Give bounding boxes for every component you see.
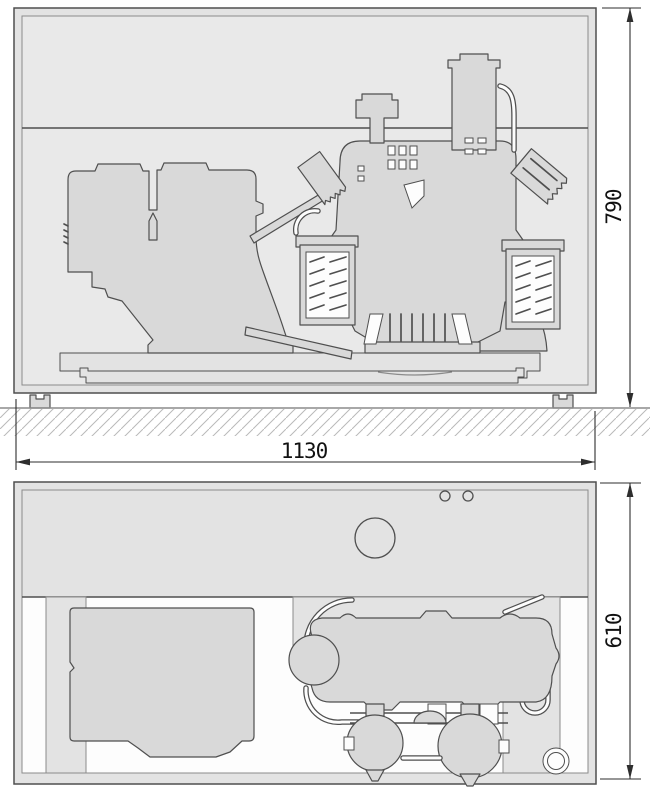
compressor-body-plan	[304, 611, 559, 710]
arrow-down	[627, 765, 634, 779]
plan-view	[14, 482, 596, 786]
right-cooler	[502, 240, 564, 329]
dimension-height: 790	[602, 8, 641, 407]
panel-hole-large	[355, 518, 395, 558]
left-cooler	[296, 236, 358, 325]
arrow-down	[627, 393, 634, 407]
width-dimension-label: 1130	[281, 439, 328, 463]
arrow-right	[581, 459, 595, 466]
outlet-port-inner	[548, 753, 565, 770]
right-foot	[553, 395, 573, 408]
top-cover-panel	[22, 490, 588, 597]
dimension-depth: 610	[600, 483, 641, 779]
base-plate	[60, 353, 540, 383]
cylinder-stack	[448, 54, 500, 150]
technical-drawing: 1130 790	[0, 0, 650, 794]
ground-hatch	[0, 409, 650, 436]
left-foot	[30, 395, 50, 408]
engine-plan-silhouette	[70, 608, 254, 757]
panel-hole-small-2	[463, 491, 473, 501]
compressor-end-cap	[289, 635, 339, 685]
side-elevation-view	[14, 8, 596, 408]
height-dimension-label: 790	[602, 189, 626, 224]
arrow-up	[627, 483, 634, 497]
arrow-left	[16, 459, 30, 466]
arrow-up	[627, 8, 634, 22]
dimension-drawing-page: 1130 790	[0, 0, 650, 794]
panel-hole-small-1	[440, 491, 450, 501]
depth-dimension-label: 610	[602, 613, 626, 648]
ground	[0, 408, 650, 436]
